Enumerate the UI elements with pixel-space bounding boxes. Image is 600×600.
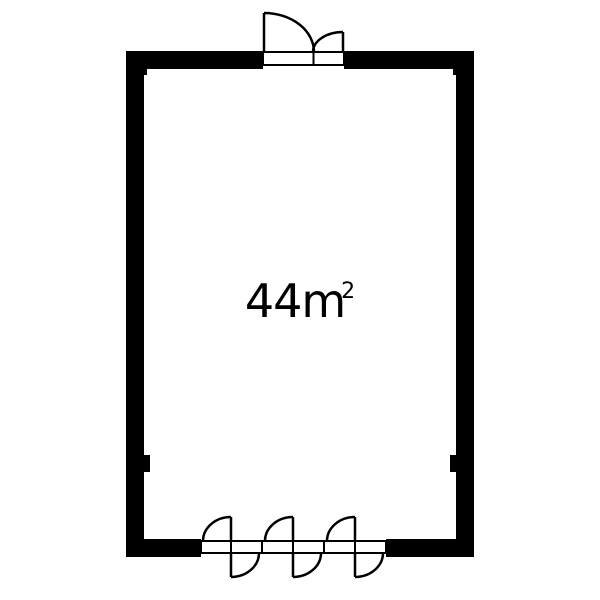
bottom-door bbox=[201, 517, 386, 577]
floor-plan-canvas: 44m2 bbox=[0, 0, 600, 600]
area-superscript: 2 bbox=[341, 281, 355, 303]
area-value: 44m bbox=[245, 274, 345, 328]
wall-left bbox=[126, 51, 144, 557]
bottom-door-lower-swing-arc-3 bbox=[355, 553, 383, 577]
bottom-door-lower-swing-arc-2 bbox=[293, 553, 321, 577]
wall-top-left-segment bbox=[126, 51, 263, 69]
top-door bbox=[263, 13, 344, 65]
wall-stub-left bbox=[140, 455, 150, 472]
bottom-door-upper-swing-arc-2 bbox=[265, 517, 293, 541]
wall-bottom-left-segment bbox=[126, 539, 201, 557]
wall-right bbox=[456, 51, 474, 557]
room-area-label: 44m2 bbox=[245, 278, 355, 324]
wall-corner-step-top-right bbox=[453, 69, 462, 75]
bottom-door-upper-swing-arc-1 bbox=[203, 517, 231, 541]
wall-corner-step-top-left bbox=[138, 69, 147, 75]
bottom-door-lower-swing-arc-1 bbox=[231, 553, 259, 577]
bottom-door-upper-swing-arc-3 bbox=[327, 517, 355, 541]
wall-stub-right bbox=[450, 455, 460, 472]
top-door-sill-band bbox=[263, 52, 344, 65]
wall-top-right-segment bbox=[344, 51, 474, 69]
wall-bottom-right-segment bbox=[386, 539, 474, 557]
top-door-left-swing-arc bbox=[264, 13, 314, 52]
top-door-right-swing-arc bbox=[313, 32, 343, 52]
